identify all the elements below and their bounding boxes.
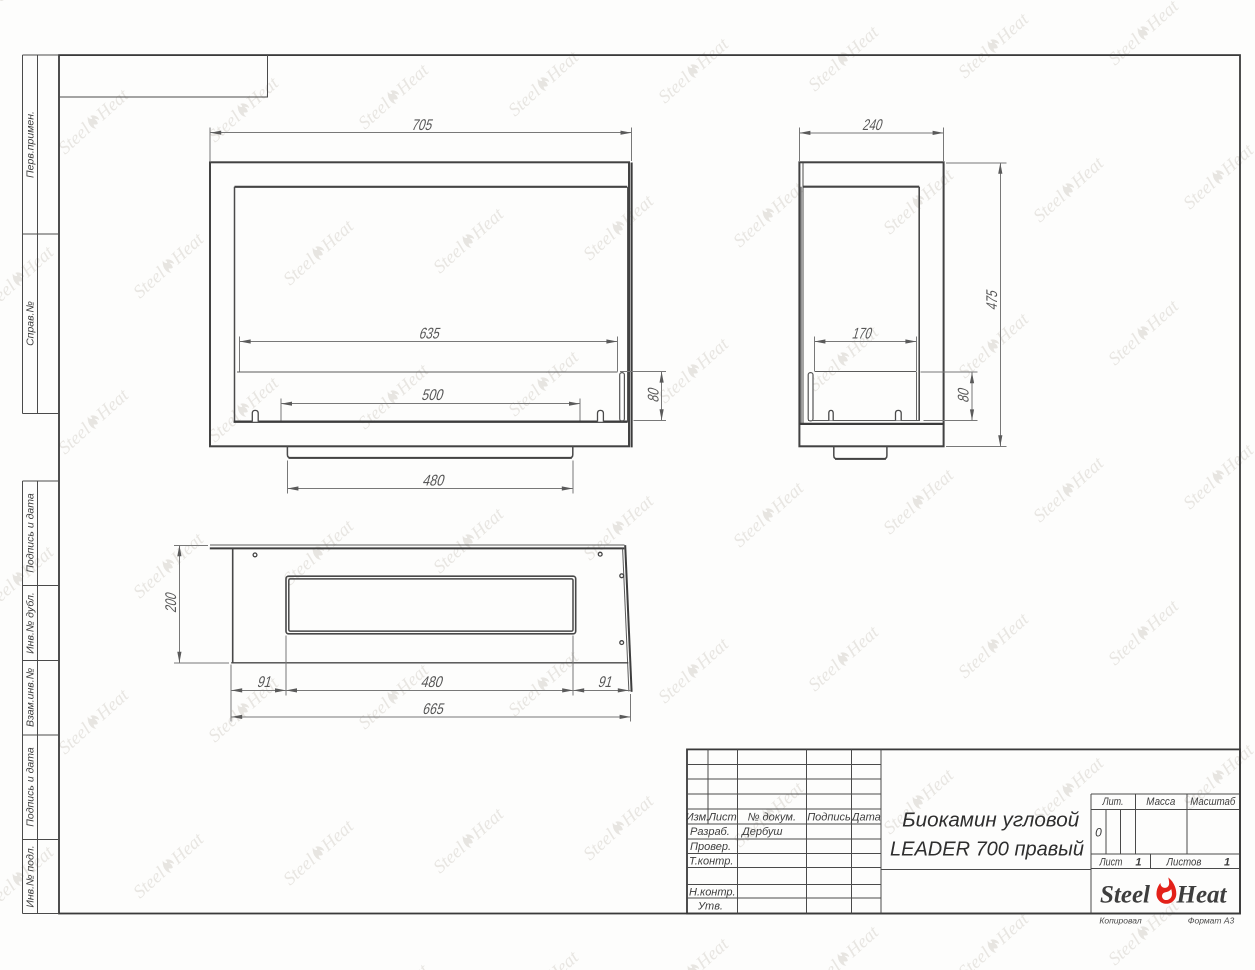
svg-text:Листов: Листов — [1166, 857, 1202, 869]
svg-text:Утв.: Утв. — [697, 900, 723, 912]
svg-text:LEADER 700 правый: LEADER 700 правый — [890, 839, 1084, 861]
svg-text:Лист: Лист — [1099, 857, 1123, 869]
svg-text:Лист: Лист — [707, 811, 736, 823]
svg-text:Подпись и дата: Подпись и дата — [25, 747, 37, 827]
svg-text:0: 0 — [1095, 826, 1102, 840]
svg-text:Дербуш: Дербуш — [740, 826, 783, 838]
svg-text:Провер.: Провер. — [690, 841, 731, 853]
svg-text:Подпись: Подпись — [807, 811, 851, 823]
svg-text:Инв.№ дубл.: Инв.№ дубл. — [25, 592, 37, 654]
svg-text:Копировал: Копировал — [1099, 916, 1141, 926]
svg-text:Heat: Heat — [1176, 882, 1228, 909]
svg-text:1: 1 — [1135, 857, 1141, 869]
svg-text:Биокамин угловой: Биокамин угловой — [902, 810, 1079, 832]
svg-text:Формат А3: Формат А3 — [1188, 916, 1235, 926]
svg-text:Изм.: Изм. — [686, 811, 709, 823]
svg-text:Подпись и дата: Подпись и дата — [25, 493, 37, 573]
svg-text:Инв.№ подл.: Инв.№ подл. — [25, 845, 37, 907]
svg-text:Масса: Масса — [1146, 796, 1175, 808]
svg-text:Перв.примен.: Перв.примен. — [25, 111, 37, 178]
svg-text:Справ.№: Справ.№ — [25, 301, 37, 346]
svg-text:Дата: Дата — [850, 811, 881, 823]
svg-text:Лит.: Лит. — [1102, 796, 1124, 808]
svg-text:Разраб.: Разраб. — [690, 826, 730, 838]
svg-text:Взам.инв.№: Взам.инв.№ — [25, 668, 37, 727]
svg-text:№ докум.: № докум. — [748, 811, 796, 823]
svg-text:1: 1 — [1224, 857, 1230, 869]
svg-text:Steel: Steel — [1100, 882, 1150, 909]
svg-text:Н.контр.: Н.контр. — [689, 886, 736, 898]
svg-text:Т.контр.: Т.контр. — [689, 855, 733, 867]
svg-text:Масштаб: Масштаб — [1190, 796, 1236, 808]
